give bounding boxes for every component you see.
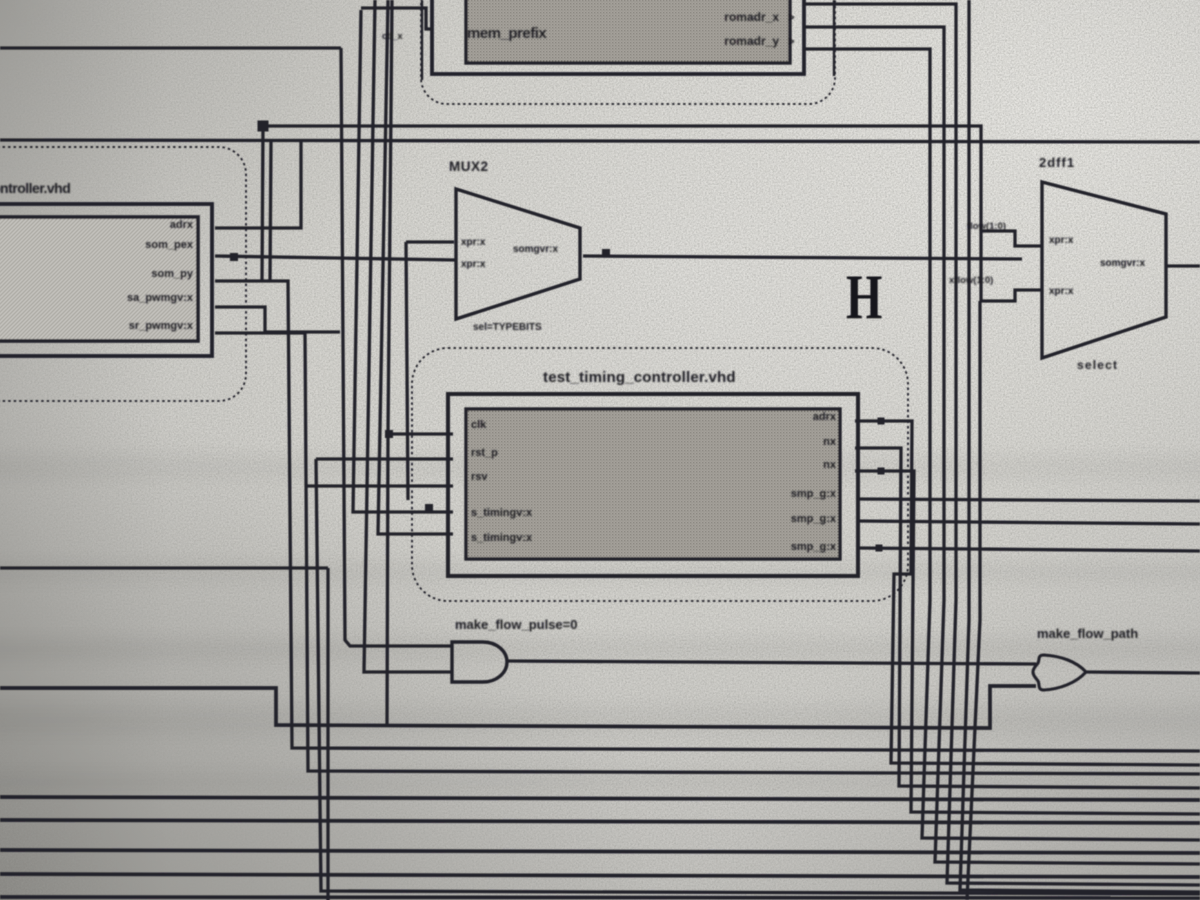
svg-text:romadr_y: romadr_y (724, 34, 779, 48)
svg-text:nx: nx (823, 436, 837, 448)
svg-text:xpr:x: xpr:x (1049, 235, 1074, 246)
svg-text:smp_g:x: smp_g:x (791, 513, 837, 525)
svg-text:sr_pwmgv:x: sr_pwmgv:x (129, 320, 194, 332)
svg-text:xpr:x: xpr:x (461, 259, 486, 270)
svg-text:adrx: adrx (170, 219, 194, 231)
svg-text:rsv: rsv (471, 471, 488, 483)
svg-text:romadr_x: romadr_x (724, 10, 779, 24)
svg-text:s_timingv:x: s_timingv:x (471, 532, 533, 544)
svg-text:s_timingv:x: s_timingv:x (471, 507, 533, 519)
svg-text:select: select (1077, 358, 1118, 372)
svg-text:som_py: som_py (151, 268, 193, 280)
svg-text:>: > (788, 36, 794, 48)
svg-text:ctl_x: ctl_x (382, 31, 403, 41)
svg-text:clk: clk (471, 419, 487, 431)
svg-text:xflow(1:0): xflow(1:0) (949, 275, 993, 286)
svg-text:mem_prefix: mem_prefix (467, 25, 547, 42)
svg-text:sa_pwmgv:x: sa_pwmgv:x (127, 292, 194, 304)
svg-text:H: H (846, 262, 882, 333)
svg-text:smp_g:x: smp_g:x (791, 488, 837, 500)
svg-text:somgvr:x: somgvr:x (1100, 258, 1145, 269)
svg-text:ontroller.vhd: ontroller.vhd (0, 180, 70, 196)
svg-text:som_pex: som_pex (145, 239, 194, 251)
svg-text:flow(1:0): flow(1:0) (967, 221, 1006, 232)
svg-text:adrx: adrx (813, 411, 837, 423)
svg-text:2dff1: 2dff1 (1039, 155, 1075, 170)
svg-text:somgvr:x: somgvr:x (513, 244, 558, 255)
svg-text:sel=TYPEBITS: sel=TYPEBITS (473, 322, 542, 333)
svg-text:make_flow_path: make_flow_path (1037, 626, 1138, 641)
svg-text:xpr:x: xpr:x (461, 237, 486, 248)
svg-text:>: > (788, 12, 794, 24)
svg-text:test_timing_controller.vhd: test_timing_controller.vhd (543, 369, 736, 386)
svg-text:MUX2: MUX2 (449, 159, 489, 174)
svg-text:make_flow_pulse=0: make_flow_pulse=0 (455, 617, 577, 632)
svg-text:smp_g:x: smp_g:x (791, 541, 837, 553)
svg-text:rst_p: rst_p (471, 447, 498, 459)
svg-text:xpr:x: xpr:x (1049, 286, 1074, 297)
svg-text:nx: nx (823, 459, 837, 471)
